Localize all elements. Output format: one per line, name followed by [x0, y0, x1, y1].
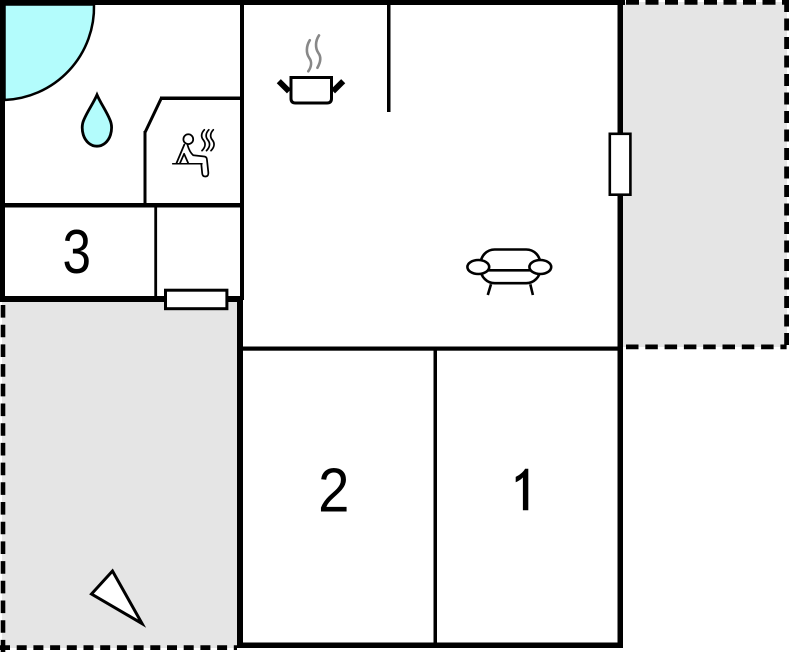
svg-text:2: 2 [318, 455, 349, 525]
svg-text:3: 3 [63, 217, 91, 287]
